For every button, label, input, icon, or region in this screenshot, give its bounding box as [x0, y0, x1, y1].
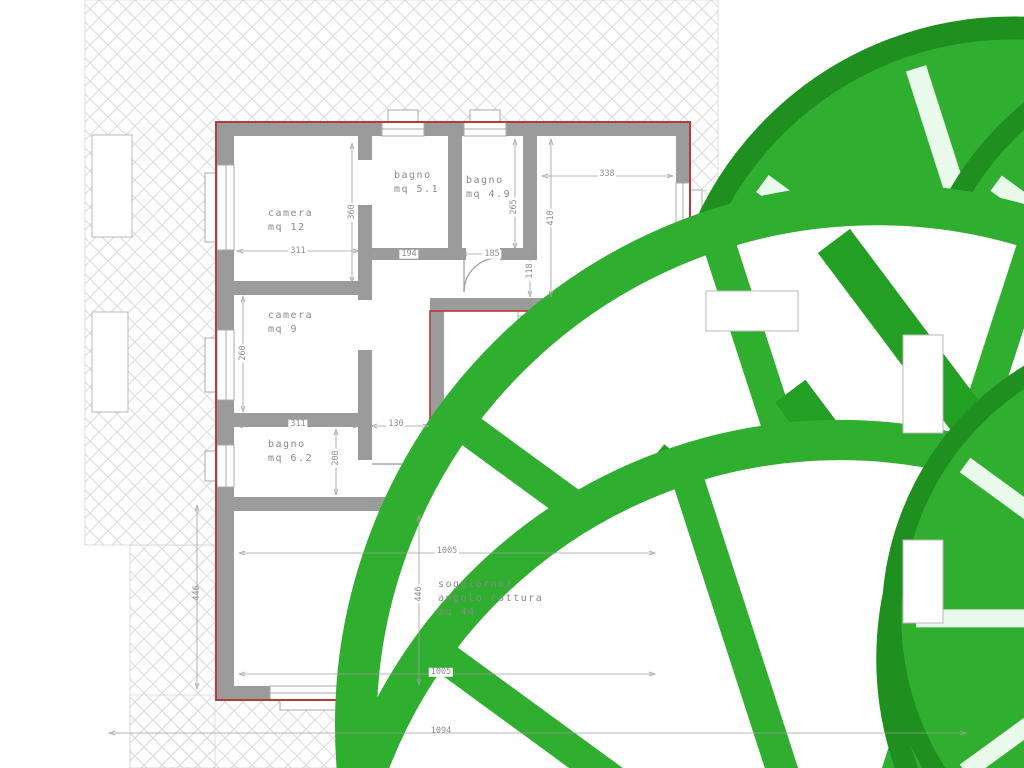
planter-box — [92, 312, 128, 412]
dim-soggiorno-width-bottom: 1005 — [429, 668, 453, 677]
floor-plan-drawing — [0, 0, 1024, 768]
dim-camera9-width: 311 — [288, 420, 307, 429]
room-area-bagno49: mq 4.9 — [466, 190, 511, 200]
dim-bagno62-height: 200 — [332, 448, 341, 467]
dim-hall-segment-2: 185 — [482, 250, 501, 259]
planter-box — [903, 335, 943, 433]
dim-bagno49-height: 265 — [510, 197, 519, 216]
dim-camera12-width: 311 — [288, 247, 307, 256]
room-label-bagno49: bagno — [466, 176, 504, 186]
dim-hall-segment-1: 194 — [399, 250, 418, 259]
dim-room-ne-width: 338 — [597, 170, 616, 179]
room-label-camera9: camera — [268, 311, 313, 321]
room-label-camera12: camera — [268, 209, 313, 219]
dim-camera12-height: 360 — [348, 202, 357, 221]
dim-corridor-width: 130 — [386, 420, 405, 429]
room-area-bagno62: mq 6.2 — [268, 454, 313, 464]
planter-box — [903, 540, 943, 623]
dim-room-ne-height: 410 — [547, 208, 556, 227]
window-left-3 — [205, 445, 234, 487]
floor-plan-canvas: camera mq 12 bagno mq 5.1 bagno mq 4.9 c… — [0, 0, 1024, 768]
dim-terrace-height: 446 — [193, 583, 202, 602]
planter-box — [92, 135, 132, 237]
room-label-bagno51: bagno — [394, 171, 432, 181]
dim-soggiorno-height: 446 — [415, 584, 424, 603]
window-left-1 — [205, 165, 234, 250]
room-area-bagno51: mq 5.1 — [394, 185, 439, 195]
room-area-camera12: mq 12 — [268, 223, 306, 233]
room-label-soggiorno: soggiorno/ — [438, 580, 513, 590]
dim-opening-ne: 118 — [526, 261, 535, 280]
dim-total-width: 1094 — [429, 727, 453, 736]
room-label-soggiorno-2: angolo cottura — [438, 594, 543, 604]
room-area-camera9: mq 9 — [268, 325, 298, 335]
window-left-2 — [205, 330, 234, 400]
dim-camera9-height: 260 — [239, 343, 248, 362]
dim-soggiorno-width-top: 1005 — [435, 547, 459, 556]
planter-box — [706, 291, 798, 331]
room-label-bagno62: bagno — [268, 440, 306, 450]
room-area-soggiorno: mq 44 — [438, 608, 476, 618]
